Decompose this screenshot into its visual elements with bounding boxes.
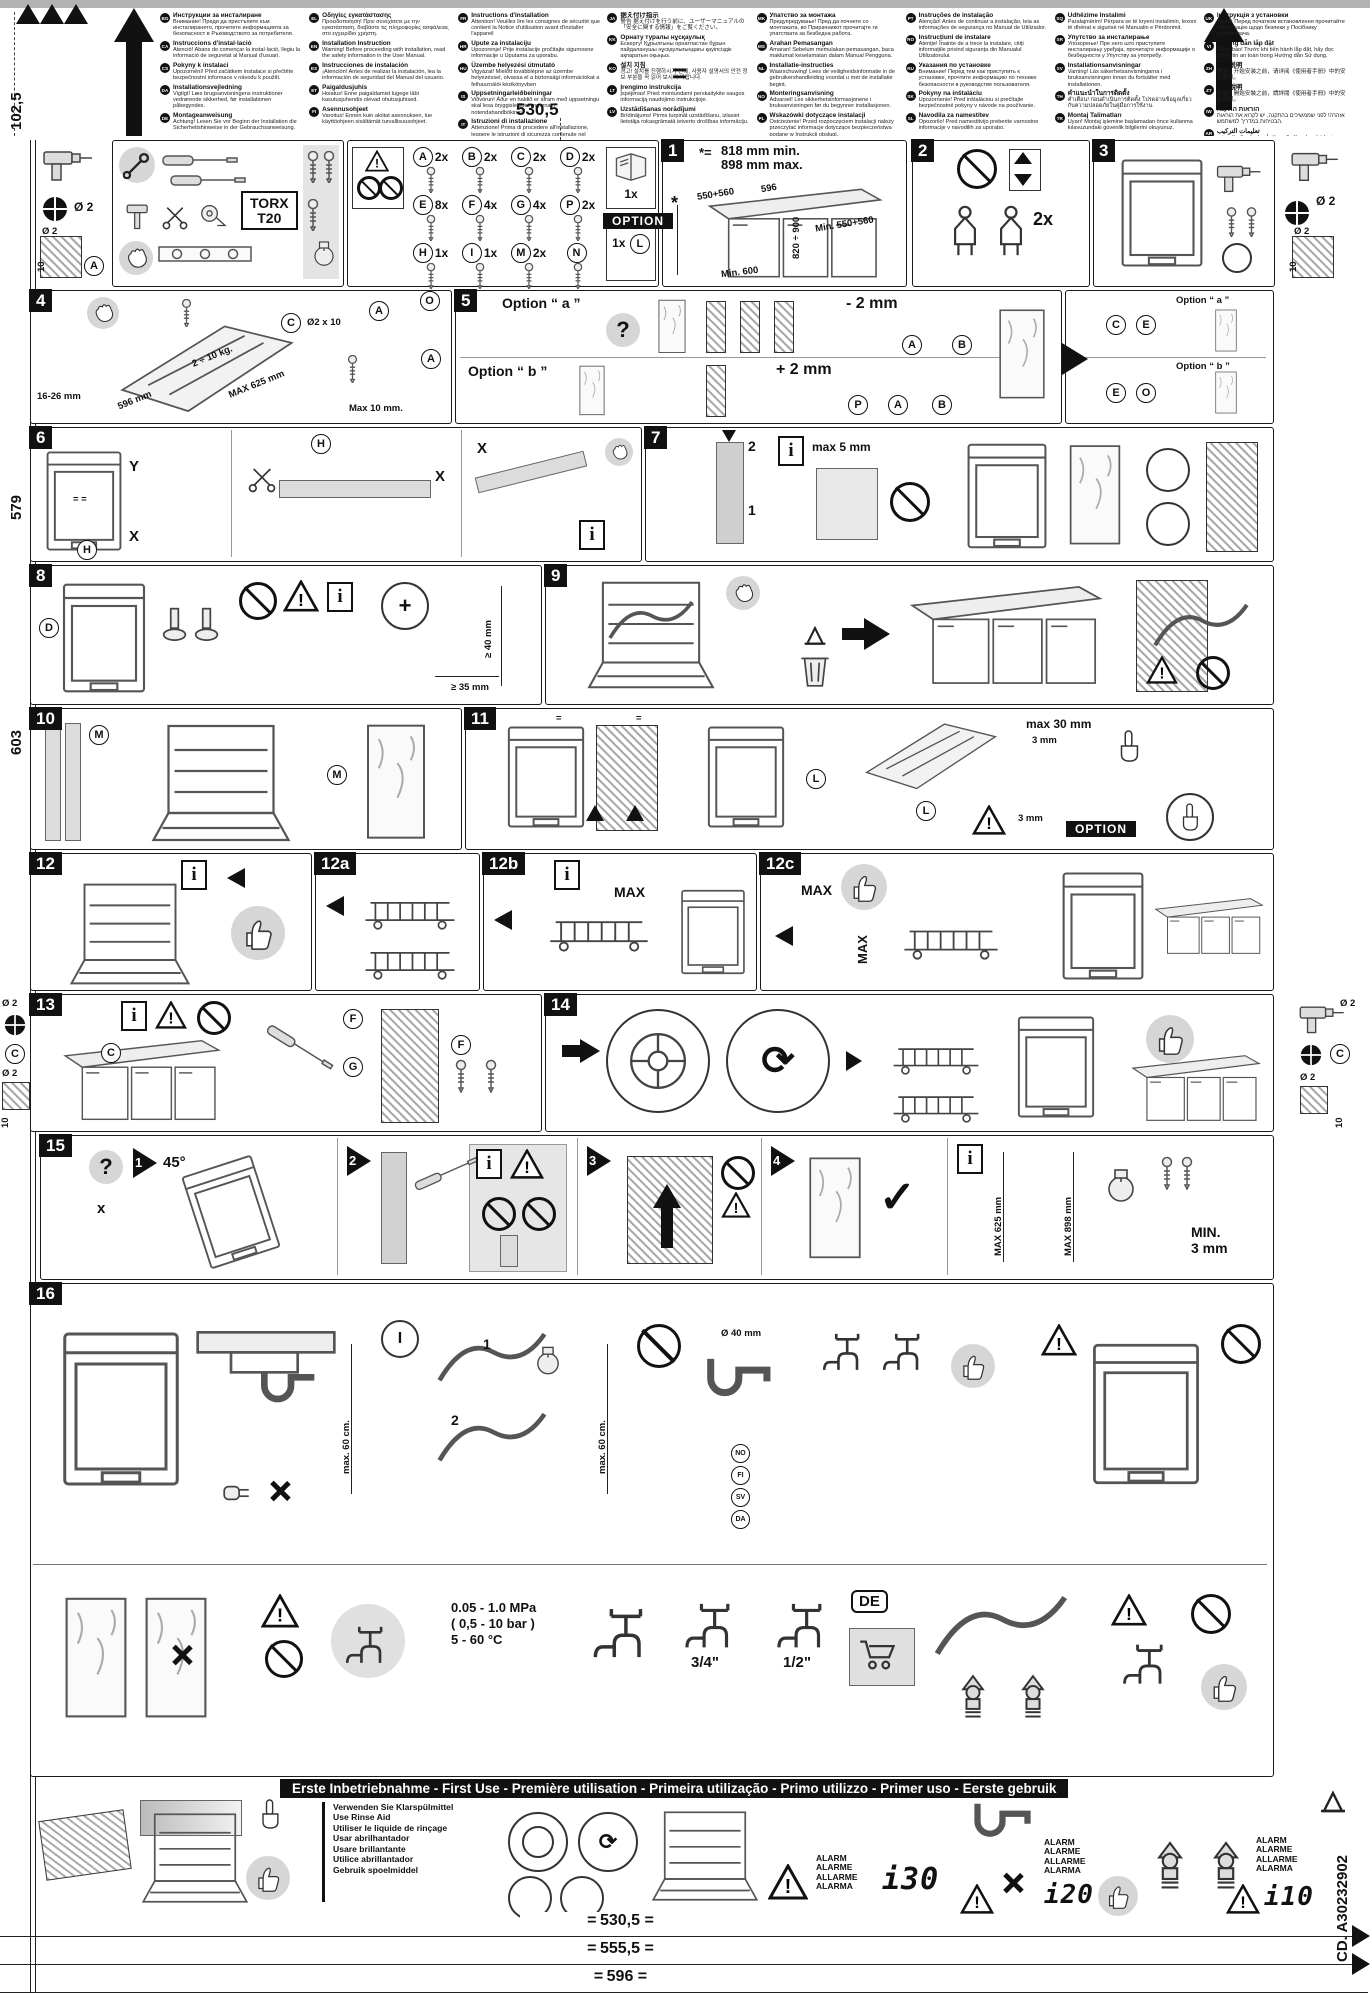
language-warning-text: Ostrzeżenie! Przed rozpoczęciem instalac… <box>770 119 899 136</box>
foot-plus-detail: + <box>381 582 429 630</box>
dim-plus-2mm: + 2 mm <box>776 361 832 379</box>
person-carrying-icon <box>943 203 987 259</box>
part-letter-circle: N <box>567 243 587 263</box>
language-code-badge: SK <box>906 91 916 101</box>
step9-number: 9 <box>544 564 567 587</box>
arrow-right-icon <box>580 1039 600 1063</box>
language-title: Instruccions d'instal·lació <box>173 40 302 47</box>
label-x: X <box>435 468 445 485</box>
niche-height-max: 898 mm max. <box>721 157 803 172</box>
part-a-circle: A <box>84 256 104 276</box>
power-plug-icon <box>221 1480 253 1506</box>
step6-panel: 6 Y X = = H H X X i <box>30 427 642 562</box>
inlet-hose-sketch <box>931 1584 1071 1664</box>
part-qty: 2x <box>435 150 448 164</box>
language-warning-text: Atenção! Antes de continuar a instalação… <box>919 19 1048 31</box>
language-code-badge: TR <box>1055 113 1065 123</box>
part-screw-icon <box>475 263 485 289</box>
dim-line <box>435 676 499 677</box>
svg-text:!: ! <box>974 1893 980 1912</box>
dim-min-3mm: 3 mm <box>1191 1240 1228 1256</box>
equals-mark: = <box>587 1940 595 1957</box>
language-code-badge: NL <box>757 63 767 73</box>
language-warning-text: Upozorenje! Prije instalacije pročitajte… <box>471 47 600 59</box>
step1-number: 1 <box>661 139 684 162</box>
option-b-label: Option “ b ” <box>468 363 547 379</box>
language-code-badge: HR <box>458 41 468 51</box>
star-mark: * <box>671 193 678 214</box>
step12b-panel: 12b i MAX <box>483 853 757 991</box>
tap-3-4-label: 3/4" <box>691 1654 719 1671</box>
language-code-badge: EL <box>309 13 319 23</box>
condensation-strip <box>45 723 61 841</box>
warning-triangle-icon: ! <box>1226 1884 1260 1914</box>
dim-depth-10: 10 <box>0 1117 11 1128</box>
sink-cabinet-sketch <box>191 1324 341 1444</box>
thumbs-up-icon <box>231 906 285 960</box>
siphon-trap-sketch <box>691 1354 781 1434</box>
part-screw-icon <box>426 215 436 241</box>
alarm-word: ALARMA <box>1256 1864 1298 1873</box>
language-title: Įrengimo instrukcija <box>620 84 749 91</box>
divider <box>1070 357 1266 358</box>
aquastop-valve-icon <box>1146 1840 1194 1894</box>
basket-sketch <box>524 906 674 952</box>
svg-text:!: ! <box>1056 1334 1062 1354</box>
svg-text:!: ! <box>375 157 379 171</box>
part-letter-circle: E <box>413 195 433 215</box>
dishwasher-sketch <box>680 882 746 982</box>
dim-45deg: 45° <box>163 1154 186 1171</box>
dim-820-900: 820 ÷ 900 <box>791 217 802 259</box>
language-title: Installatie-instructies <box>770 62 899 69</box>
dim-depth-10: 10 <box>1288 261 1299 272</box>
warning-triangle-icon: ! <box>510 1149 544 1179</box>
part-screw-icon <box>426 167 436 193</box>
option-part-letter: L <box>630 234 650 254</box>
part-f-circle: F <box>451 1035 471 1055</box>
part-item: H1x <box>406 243 455 289</box>
language-warning-text: 경고! 설치를 진행하시기 전에, 사용자 설명서의 안전 정보 부분을 꼭 읽… <box>620 69 749 81</box>
arrow-up-icon <box>1014 152 1032 164</box>
step1-panel: 1 *= 818 mm min. 898 mm max. 550+560 596… <box>662 140 907 287</box>
up-arrow-icon <box>40 4 64 24</box>
step16-panel: 16 max. 60 cm. I 1 2 max. 60 cm. Ø 40 mm… <box>30 1283 1274 1777</box>
no-extend-icon <box>637 1324 681 1368</box>
language-title: Упатство за монтажа <box>770 12 899 19</box>
country-code-circle: NO <box>731 1444 750 1463</box>
dishwasher-open-sketch <box>650 1810 760 1902</box>
language-title: Instructions d'installation <box>471 12 600 19</box>
big-up-arrow-tail <box>126 40 142 136</box>
manual-icon <box>612 152 650 182</box>
language-warning-text: Waarschuwing! Lees de veiligheidsinforma… <box>770 69 899 87</box>
panel-section <box>706 301 726 353</box>
warning-triangle-icon: ! <box>972 805 1006 835</box>
hinge-plate-small <box>500 1235 518 1267</box>
spirit-level-icon <box>157 245 253 263</box>
language-title: Upute za instalaciju <box>471 40 600 47</box>
no-kink-icon <box>1196 656 1230 690</box>
part-e-circle: E <box>1106 383 1126 403</box>
big-right-arrow-icon <box>864 618 890 650</box>
info-warning-box: i ! <box>469 1144 567 1272</box>
language-code-badge: DE <box>160 113 170 123</box>
part-item: P2x <box>553 195 602 241</box>
substep-2-badge: 2 <box>347 1146 373 1176</box>
language-code-badge: KK <box>607 35 617 45</box>
language-code-badge: SL <box>906 113 916 123</box>
cabinet-run-sketch <box>906 580 1106 690</box>
glove-icon <box>605 438 633 466</box>
appliance-sketch <box>706 725 786 829</box>
arrow-left-icon <box>326 896 344 916</box>
step11-panel: 11 = = L max 30 mm 3 mm L ! 3 mm OPTION <box>465 708 1274 850</box>
language-code-badge: BG <box>160 13 170 23</box>
step9-panel: 9 ! <box>545 565 1274 705</box>
language-warning-text: Achtung! Lesen Sie vor Beginn der Instal… <box>173 119 302 131</box>
dim-label-555-5: = 555,5 = <box>520 1940 720 1958</box>
language-title: Орнату туралы нұсқаулық <box>620 34 749 41</box>
grip-icon <box>726 576 760 610</box>
no-hold-icon <box>721 1156 755 1190</box>
step5-panel: 5 Option “ a ” ? - 2 mm A B Option “ b ”… <box>455 290 1062 424</box>
aquastop-valve-icon <box>951 1674 995 1722</box>
language-title: Instruções de instalação <box>919 12 1048 19</box>
dim-3mm: 3 mm <box>1032 735 1057 746</box>
screw-icon <box>347 355 358 383</box>
step10-panel: 10 M M <box>30 708 462 850</box>
dial-inner <box>522 1826 554 1858</box>
language-warning-text: Opozorilo! Pred namestitvijo preberite v… <box>919 119 1048 131</box>
language-title: Pokyny na inštaláciu <box>919 90 1048 97</box>
packaging-warning-box: ! <box>352 147 404 209</box>
label-x: X <box>129 528 139 545</box>
alarm-word: ALARMA <box>1044 1866 1086 1875</box>
leveling-foot-icon <box>193 606 219 646</box>
language-warning-text: Упозорење! Пре него што приступите инста… <box>1068 41 1197 59</box>
substep-number: 3 <box>589 1153 596 1168</box>
first-use-banner: Erste Inbetriebnahme - First Use - Premi… <box>280 1779 1068 1798</box>
language-warning-text: Attenzione! Prima di procedere all'insta… <box>471 125 600 136</box>
no-crush-hose-icon <box>1221 1324 1261 1364</box>
fixing-point-detail <box>1222 243 1252 273</box>
dishwasher-sketch <box>1061 870 1145 982</box>
language-entry: DAInstallationsvejledningVigtigt! Læs br… <box>160 84 302 110</box>
option-part-box: OPTION 1x L <box>606 213 656 281</box>
arrow-up-icon <box>586 805 604 821</box>
bracket-board-sketch <box>846 717 1016 793</box>
warning-triangle-icon: ! <box>721 1192 751 1218</box>
arrow-tail <box>562 1045 582 1057</box>
question-icon: ? <box>606 313 640 347</box>
rinse-aid-line: Verwenden Sie Klarspülmittel <box>333 1802 509 1812</box>
language-code-badge: NO <box>757 91 767 101</box>
condensation-strip <box>65 723 81 841</box>
tap-icon <box>881 1324 929 1372</box>
language-code-badge: CA <box>160 41 170 51</box>
part-letter-circle: M <box>511 243 531 263</box>
part-a-circle: A <box>421 349 441 369</box>
svg-text:!: ! <box>785 1876 792 1898</box>
cabinet-sketch <box>1153 870 1265 982</box>
finger-press-icon <box>1114 729 1144 763</box>
part-item: M2x <box>504 243 553 289</box>
language-entry: ROInstrucțiuni de instalareAtenție! Înai… <box>906 34 1048 60</box>
x-mark <box>171 1644 193 1666</box>
hose-clamp-icon <box>531 1344 565 1378</box>
language-warning-text: Varoitus! Ennen kuin aloitat asennuksen,… <box>322 113 451 125</box>
drill-icon <box>1214 159 1264 197</box>
two-person-qty: 2x <box>1033 209 1053 230</box>
alarm-words-block: ALARMALARMEALLARMEALARMA <box>1044 1838 1086 1875</box>
torx-size: T20 <box>257 210 281 226</box>
language-title: Üzembe helyezési útmutató <box>471 62 600 69</box>
language-title: Montageanweisung <box>173 112 302 119</box>
step15-number: 15 <box>39 1134 72 1157</box>
appliance-sketch <box>506 725 586 829</box>
svg-text:!: ! <box>1240 1893 1246 1912</box>
language-entry: FIAsennusohjeetVaroitus! Ennen kuin aloi… <box>309 106 451 125</box>
multilingual-warning-header: BGИнструкции за инсталиранеВнимание! Пре… <box>160 12 1346 136</box>
warning-triangle-icon: ! <box>155 1001 187 1029</box>
door-gap-sketch <box>816 468 878 540</box>
door-panel-sketch <box>805 1156 865 1262</box>
dim-max-30mm: max 30 mm <box>1026 717 1091 731</box>
language-column: SQUdhëzime InstalimiParalajmërim! Përpar… <box>1055 12 1197 136</box>
tap-3-4-icon <box>683 1592 741 1650</box>
language-code-badge: ZH <box>1204 63 1214 73</box>
option-a-label: Option “ a ” <box>1176 295 1229 306</box>
max-label: MAX <box>614 884 645 900</box>
tap-icon <box>821 1324 869 1372</box>
language-column: BGИнструкции за инсталиранеВнимание! Пре… <box>160 12 302 136</box>
tools-panel: TORXT20 <box>112 140 344 287</box>
arrow-right-icon <box>1352 1953 1370 1975</box>
hoses-sketch <box>606 594 696 644</box>
language-code-badge: LV <box>607 107 617 117</box>
step7-number: 7 <box>644 426 667 449</box>
step12a-number: 12a <box>314 852 356 875</box>
step12c-panel: 12c MAX MAX <box>760 853 1274 991</box>
part-item: N <box>553 243 602 289</box>
language-code-badge: DA <box>160 85 170 95</box>
thumbs-up-icon <box>1098 1876 1138 1916</box>
language-entry: SQUdhëzime InstalimiParalajmërim! Përpar… <box>1055 12 1197 31</box>
part-item: D2x <box>553 147 602 193</box>
part-screw-icon <box>573 263 583 289</box>
step5-option-result-panel: Option “ a ” C E Option “ b ” E O <box>1065 290 1274 424</box>
part-qty: 1x <box>484 246 497 260</box>
thumbs-up-icon <box>246 1856 290 1900</box>
language-title: Navodila za namestitev <box>919 112 1048 119</box>
language-entry: NOMonteringsanvisningAdvarsel! Les sikke… <box>757 90 899 109</box>
no-unscrew-icon <box>482 1197 516 1231</box>
part-item: A2x <box>406 147 455 193</box>
language-warning-text: Varning! Läs säkerhetsanvisningarna i br… <box>1068 69 1197 87</box>
hinge-detail-circle <box>1146 502 1190 546</box>
part-screw-icon <box>475 167 485 193</box>
dim-line <box>677 205 678 275</box>
part-item: F4x <box>455 195 504 241</box>
screwdriver-icon <box>169 173 249 187</box>
dim-screw-2x10: Ø2 x 10 <box>307 317 341 328</box>
worktop-underside-sketch <box>361 723 431 843</box>
screwdriver-icon <box>263 1021 338 1075</box>
manual-qty: 1x <box>607 187 655 201</box>
info-icon: i <box>121 1001 147 1031</box>
part-i-letter: I <box>398 1330 402 1348</box>
language-code-badge: FR <box>458 13 468 23</box>
dim-max-60cm: max. 60 cm. <box>341 1420 352 1474</box>
basket-sketch <box>350 888 470 930</box>
step11-number: 11 <box>464 707 496 730</box>
language-code-badge: ZT <box>1204 85 1214 95</box>
language-warning-text: Uyarı! Montaj işlemine başlamadan önce k… <box>1068 119 1197 131</box>
language-code-badge: PL <box>757 113 767 123</box>
language-title: تعليمات التركيب <box>1217 128 1346 135</box>
big-right-arrow-icon <box>1062 343 1088 375</box>
part-qty: 2x <box>533 246 546 260</box>
big-up-arrow-icon <box>653 1184 681 1208</box>
language-warning-text: Cảnh báo! Trước khi tiến hành lắp đặt, h… <box>1217 47 1346 59</box>
rinse-aid-text-block: Verwenden Sie KlarspülmittelUse Rinse Ai… <box>322 1802 509 1902</box>
language-warning-text: Ескерту! Құрылғыны орнатпастан бұрын пай… <box>620 41 749 59</box>
step16-number: 16 <box>29 1282 62 1305</box>
cabinet-side-section <box>381 1009 439 1123</box>
panel-section <box>774 301 794 353</box>
language-code-badge: ES <box>309 63 319 73</box>
equal-marks: = = <box>73 494 87 505</box>
language-title: Указания по установке <box>919 62 1048 69</box>
part-b-circle: B <box>932 395 952 415</box>
equals-mark: = <box>587 1912 595 1929</box>
torx-label: TORX <box>250 195 289 211</box>
option-a-label: Option “ a ” <box>502 295 581 311</box>
cart-icon <box>858 1637 898 1673</box>
no-lift-alone-icon <box>957 149 997 189</box>
thumbs-up-icon <box>951 1344 995 1388</box>
dishwasher-open-sketch <box>140 1812 250 1904</box>
de-country-label: DE <box>851 1590 888 1613</box>
up-arrow-icon <box>64 4 88 24</box>
warning-triangle-icon: ! <box>1146 656 1178 684</box>
language-entry: SVInstallationsanvisningarVarning! Läs s… <box>1055 62 1197 88</box>
language-entry: CAInstruccions d'instal·lacióAtenció! Ab… <box>160 40 302 59</box>
leveling-foot-icon <box>161 606 187 646</box>
recycle-icon <box>800 622 830 648</box>
language-warning-text: Warning! Before proceeding with installa… <box>322 47 451 59</box>
part-o-circle: O <box>1136 383 1156 403</box>
arrow-up-icon <box>626 805 644 821</box>
arrow-left-icon <box>775 926 793 946</box>
part-screw-icon <box>524 263 534 289</box>
aquastop-valve-icon <box>1011 1674 1055 1722</box>
svg-text:!: ! <box>1126 1604 1132 1624</box>
part-letter-circle: H <box>413 243 433 263</box>
parts-grid: A2x B2x C2x D2x <box>406 147 602 277</box>
language-title: Installationsvejledning <box>173 84 302 91</box>
language-warning-text: Įspėjimas! Prieš montuodami perskaitykit… <box>620 91 749 103</box>
water-temp-spec: 5 - 60 °C <box>451 1632 502 1647</box>
warning-triangle-icon: ! <box>365 150 389 172</box>
language-title: Udhëzime Instalimi <box>1068 12 1197 19</box>
dim-depth-10: 10 <box>36 261 47 272</box>
drill-icon <box>40 144 96 186</box>
up-arrow-icon <box>16 4 40 24</box>
dim-102-5: 102,5 <box>8 92 25 130</box>
info-icon: i <box>554 860 580 890</box>
language-entry: CSPokyny k instalaciUpozornění! Před zač… <box>160 62 302 81</box>
part-c-circle: C <box>101 1043 121 1063</box>
dishwasher-sketch <box>61 1324 181 1494</box>
max-label: MAX <box>801 882 832 898</box>
substep-number: 2 <box>349 1153 356 1168</box>
tap-1-2-label: 1/2" <box>783 1654 811 1671</box>
language-warning-text: Внимание! Преди да пристъпите към инстал… <box>173 19 302 37</box>
language-code-badge: VI <box>1204 41 1214 51</box>
divider <box>337 1138 338 1275</box>
star-equals: *= <box>699 145 712 160</box>
arrow-right-icon <box>1352 1925 1370 1947</box>
substep-number: 1 <box>135 1155 142 1170</box>
scissors-icon <box>247 464 277 494</box>
part-i-circle: I <box>381 1320 419 1358</box>
option-badge: OPTION <box>1066 821 1136 837</box>
part-c-circle: C <box>5 1044 25 1064</box>
substep-1-badge: 1 <box>133 1148 159 1178</box>
equals-mark: = <box>644 1940 652 1957</box>
drill-target-icon <box>4 1014 26 1036</box>
cabinet-run-sketch <box>47 1035 237 1125</box>
warning-triangle-icon: ! <box>768 1864 808 1900</box>
warning-triangle-icon: ! <box>283 580 319 612</box>
language-code-badge: PT <box>906 13 916 23</box>
warning-triangle-icon: ! <box>1041 1324 1077 1356</box>
press-detail-circle <box>1166 793 1214 841</box>
language-title: Instrucciones de instalación <box>322 62 451 69</box>
language-entry: SLNavodila za namestitevOpozorilo! Pred … <box>906 112 1048 131</box>
dim-hole: Ø 2 <box>42 226 57 237</box>
language-entry: ELΟδηγίες εγκατάστασηςΠροειδοποίηση! Πρι… <box>309 12 451 38</box>
part-e-circle: E <box>1136 315 1156 335</box>
language-entry: KO설치 지침경고! 설치를 진행하시기 전에, 사용자 설명서의 안전 정보 … <box>607 62 749 81</box>
dim-line-555 <box>0 1964 1362 1965</box>
rinse-aid-line: Utiliser le liquide de rinçage <box>333 1823 509 1833</box>
tray-sketch <box>38 1809 132 1880</box>
language-title: Uzstādīšanas norādījumi <box>620 106 749 113</box>
language-entry: LVUzstādīšanas norādījumiBrīdinājums! Pi… <box>607 106 749 125</box>
language-warning-text: אזהרה! לפני שממשיכים בהתקנה, יש לקרוא את… <box>1217 113 1346 125</box>
substep-3-badge: 3 <box>587 1146 613 1176</box>
part-letter-circle: A <box>413 147 433 167</box>
screw-icon <box>181 299 192 327</box>
language-warning-text: Vigtigt! Læs brugsanvisningens instrukti… <box>173 91 302 109</box>
hose-step-2: 2 <box>451 1412 459 1428</box>
basket-sketch <box>876 1083 996 1123</box>
language-warning-text: Предупредување! Пред да почнете со монта… <box>770 19 899 37</box>
part-c-circle: C <box>1106 315 1126 335</box>
language-entry: PLWskazówki dotyczące instalacjiOstrzeże… <box>757 112 899 136</box>
part-screw-icon <box>426 263 436 289</box>
language-code-badge: CS <box>160 63 170 73</box>
clip-step-1: 1 <box>748 502 756 518</box>
part-c-circle: C <box>281 313 301 333</box>
screw-icon <box>485 1059 497 1093</box>
screw-icon <box>1246 207 1257 237</box>
screw-icon <box>307 151 319 183</box>
no-discard-icon <box>357 176 381 200</box>
